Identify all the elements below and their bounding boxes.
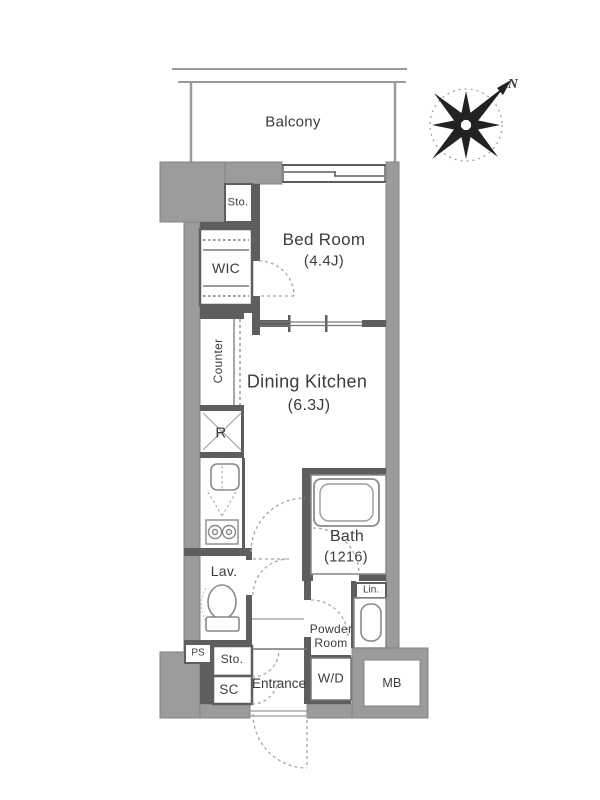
dk-door-arc (251, 498, 305, 552)
toilet (202, 585, 240, 631)
refrigerator-label: R (215, 424, 226, 441)
kitchen-sink (211, 464, 239, 490)
storage-bottom-label: Sto. (221, 653, 244, 667)
counter-lines (234, 319, 240, 405)
storage-door-arc (252, 650, 279, 677)
compass-rose (430, 80, 511, 161)
counter-label: Counter (212, 339, 226, 384)
washbasin (361, 604, 381, 641)
meter-box-label: MB (382, 676, 401, 690)
washer-dryer-label: W/D (318, 672, 344, 687)
powder-room-label: Powder Room (302, 623, 360, 651)
storage-top-label: Sto. (228, 197, 249, 210)
entrance-door-arc (253, 714, 307, 768)
balcony-label: Balcony (265, 113, 320, 130)
wic-label: WIC (212, 260, 240, 276)
entrance-label: Entrance (252, 676, 306, 692)
lavatory-label: Lav. (211, 563, 238, 579)
balcony-window (282, 163, 386, 184)
pipe-space-label: PS (191, 647, 204, 659)
bathtub (314, 479, 379, 526)
compass-north-label: N (508, 77, 518, 93)
dining-kitchen-label: Dining Kitchen (247, 372, 367, 393)
wic-door-arc (259, 261, 294, 296)
dining-kitchen-size-label: (6.3J) (288, 397, 331, 415)
bedroom-label: Bed Room (283, 230, 366, 250)
linen-label: Lin. (363, 584, 379, 596)
kitchen-stove (206, 520, 238, 544)
shoe-closet-label: SC (219, 682, 238, 698)
bath-label: Bath (330, 528, 364, 546)
lavatory-door-arc (253, 559, 289, 595)
step-lines (250, 619, 307, 716)
bath-size-label: (1216) (324, 550, 368, 567)
bedroom-size-label: (4.4J) (304, 252, 344, 269)
floor-plan: Balcony Sto. Bed Room (4.4J) WIC Counter… (0, 0, 600, 800)
